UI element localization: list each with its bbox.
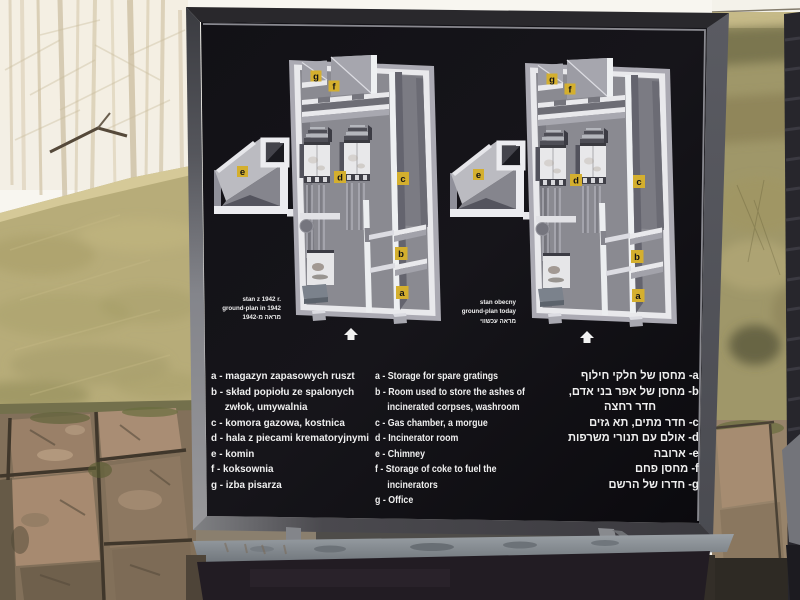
- svg-text:e: e: [240, 167, 245, 178]
- svg-text:g: g: [313, 72, 319, 83]
- svg-text:a: a: [399, 288, 405, 299]
- svg-text:c: c: [400, 174, 405, 185]
- svg-text:d: d: [337, 173, 343, 184]
- svg-text:b: b: [398, 249, 404, 260]
